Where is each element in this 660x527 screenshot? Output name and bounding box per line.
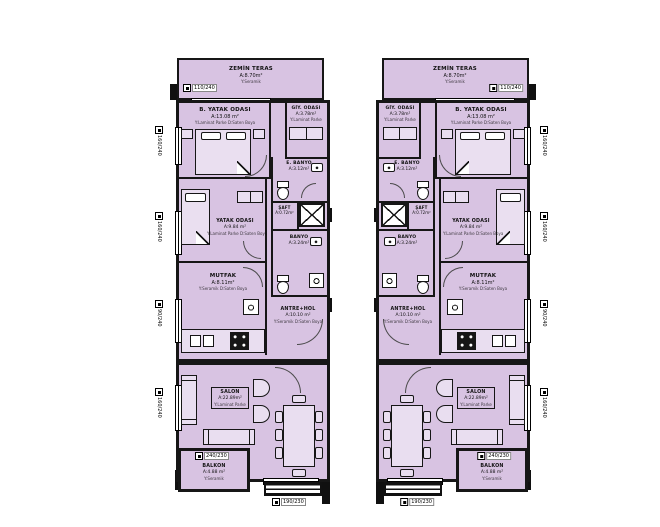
wall: [379, 295, 435, 297]
dimension-tag-icon: [477, 452, 485, 460]
dresser-icon: [443, 191, 469, 203]
sink-basin-icon: [203, 335, 214, 347]
apartment-unit-right: 110/240 ZEMİN TERAS A:8.70m² Y:Seramik: [376, 58, 530, 504]
door-arc-icon: [443, 267, 463, 287]
apartment-unit-left: 110/240 ZEMİN TERAS A:8.70m² Y:Seramik: [176, 58, 330, 504]
dimension-tag-icon: [272, 498, 280, 506]
pillow-icon: [185, 193, 206, 202]
dimension-text: 110/240: [498, 84, 523, 92]
entry-steps-icon: [384, 482, 442, 496]
room-terrace: 110/240 ZEMİN TERAS A:8.70m² Y:Seramik: [382, 58, 529, 100]
nightstand-icon: [253, 129, 265, 139]
dimension-tag-icon: [155, 300, 163, 308]
salon-label: SALON A:22.89m² Y:Laminat Parke: [457, 387, 495, 409]
door-arc-icon: [301, 183, 316, 198]
toilet-icon: [418, 181, 430, 198]
shaft-label: ŞAFT A:0.72m²: [271, 205, 298, 215]
dimension-text: 190/230: [281, 498, 306, 506]
armchair-icon: [253, 405, 270, 423]
bed-icon: [496, 189, 525, 245]
chair-icon: [275, 429, 283, 441]
chair-icon: [423, 429, 431, 441]
chair-icon: [275, 411, 283, 423]
armchair-icon: [436, 379, 453, 397]
dimension-text: 160/240: [541, 135, 547, 156]
kitchen-counter-icon: [181, 329, 265, 353]
balcony-label: BALKON A:4.88 m² Y:Seramik: [184, 464, 244, 481]
chair-icon: [383, 411, 391, 423]
dimension-tag: 160/240: [155, 388, 163, 418]
dimension-tag-icon: [540, 300, 548, 308]
floor-plan-canvas: 110/240 ZEMİN TERAS A:8.70m² Y:Seramik: [0, 0, 660, 527]
nightstand-icon: [513, 129, 525, 139]
dressing-room-label: GİY. ODASI A:3.78m² Y:Laminat Parke: [286, 106, 326, 122]
sofa-icon: [509, 375, 525, 425]
dimension-tag: 160/240: [540, 126, 548, 156]
dimension-tag: 240/230: [477, 452, 511, 460]
window-icon: [524, 385, 531, 431]
dimension-tag: 90/240: [155, 300, 163, 327]
wall: [179, 261, 267, 263]
dimension-text: 110/240: [192, 84, 217, 92]
unit-body: B. YATAK ODASI A:13.08 m² Y:Laminat Park…: [176, 100, 330, 362]
door-arc-icon: [243, 241, 261, 259]
pillow-icon: [485, 132, 505, 140]
chair-icon: [315, 429, 323, 441]
wall: [179, 177, 271, 179]
sofa-icon: [451, 429, 503, 445]
dimension-text: 90/240: [541, 309, 547, 327]
armchair-icon: [436, 405, 453, 423]
chair-icon: [275, 447, 283, 459]
dimension-tag: 190/230: [400, 498, 434, 506]
wall: [271, 295, 327, 297]
dimension-tag-icon: [155, 388, 163, 396]
stove-icon: [230, 332, 249, 350]
toilet-icon: [418, 275, 430, 292]
sink-basin-icon: [492, 335, 503, 347]
wall-pier: [170, 84, 177, 100]
wall-pier: [376, 482, 384, 504]
wall: [285, 157, 327, 159]
chair-icon: [315, 411, 323, 423]
shaft-label: ŞAFT A:0.72m²: [408, 205, 435, 215]
wall-pier: [322, 482, 330, 504]
dimension-text: 160/240: [541, 397, 547, 418]
wall: [265, 179, 267, 263]
wall: [433, 157, 435, 297]
dimension-tag: 240/230: [195, 452, 229, 460]
dimension-tag: 110/240: [489, 84, 523, 92]
shaft-x-icon: [381, 203, 407, 227]
unit-body: B. YATAK ODASI A:13.08 m² Y:Laminat Park…: [376, 100, 530, 362]
master-bedroom-label: B. YATAK ODASI A:13.08 m² Y:Laminat Park…: [185, 107, 265, 125]
sink-basin-icon: [190, 335, 201, 347]
dimension-tag-icon: [183, 84, 191, 92]
door-arc-icon: [275, 367, 301, 393]
door-arc-icon: [243, 267, 263, 287]
oven-icon: [447, 299, 463, 315]
dressing-room-label: GİY. ODASI A:3.78m² Y:Laminat Parke: [380, 106, 420, 122]
entry-steps-icon: [264, 482, 322, 496]
washing-machine-icon: [309, 273, 324, 288]
wall: [265, 263, 267, 355]
sofa-icon: [203, 429, 255, 445]
window-icon: [524, 299, 531, 343]
chair-icon: [423, 411, 431, 423]
dimension-text: 240/230: [204, 452, 229, 460]
door-arc-icon: [445, 241, 463, 259]
salon-label: SALON A:22.89m² Y:Laminat Parke: [211, 387, 249, 409]
pillow-icon: [226, 132, 246, 140]
oven-icon: [243, 299, 259, 315]
wardrobe-icon: [289, 127, 323, 140]
chair-icon: [383, 447, 391, 459]
wall: [379, 229, 435, 231]
wall: [379, 157, 421, 159]
terrace-label: ZEMİN TERAS A:8.70m² Y:Seramik: [205, 66, 297, 84]
dimension-text: 240/230: [486, 452, 511, 460]
dining-table-icon: [391, 405, 423, 467]
sofa-icon: [181, 375, 197, 425]
wall: [439, 179, 441, 263]
wall: [271, 229, 327, 231]
bed-icon: [195, 129, 251, 175]
wardrobe-icon: [383, 127, 417, 140]
dimension-text: 160/240: [541, 221, 547, 242]
kitchen-counter-icon: [441, 329, 525, 353]
window-icon: [524, 211, 531, 255]
balcony-label: BALKON A:4.88 m² Y:Seramik: [462, 464, 522, 481]
dimension-tag: 160/240: [155, 212, 163, 242]
terrace-label: ZEMİN TERAS A:8.70m² Y:Seramik: [409, 66, 501, 84]
master-bedroom-label: B. YATAK ODASI A:13.08 m² Y:Laminat Park…: [441, 107, 521, 125]
dimension-text: 190/230: [409, 498, 434, 506]
dimension-tag: 90/240: [540, 300, 548, 327]
chair-icon: [383, 429, 391, 441]
dimension-text: 160/240: [156, 397, 162, 418]
sink-basin-icon: [505, 335, 516, 347]
chair-icon: [400, 395, 414, 403]
dimension-tag: 110/240: [183, 84, 217, 92]
door-arc-icon: [405, 367, 431, 393]
dimension-tag-icon: [489, 84, 497, 92]
pillow-icon: [460, 132, 480, 140]
entry-door-arc-icon: [297, 319, 323, 345]
bed-icon: [181, 189, 210, 245]
chair-icon: [400, 469, 414, 477]
toilet-icon: [276, 181, 288, 198]
dresser-icon: [237, 191, 263, 203]
dining-table-icon: [283, 405, 315, 467]
room-balcony: 240/230 BALKON A:4.88 m² Y:Seramik: [178, 448, 250, 492]
window-icon: [524, 127, 531, 165]
sink-icon: [310, 237, 322, 246]
dimension-tag-icon: [540, 212, 548, 220]
bedroom-label: YATAK ODASI A:9.84 m² Y:Laminat Parke D:…: [443, 219, 499, 236]
washing-machine-icon: [382, 273, 397, 288]
dimension-tag-icon: [540, 126, 548, 134]
shaft-x-icon: [299, 203, 325, 227]
dimension-tag-icon: [400, 498, 408, 506]
pillow-icon: [201, 132, 221, 140]
dimension-tag: 160/240: [540, 212, 548, 242]
wall: [435, 103, 437, 179]
armchair-icon: [253, 379, 270, 397]
bed-icon: [455, 129, 511, 175]
door-arc-icon: [439, 155, 461, 177]
dimension-tag: 160/240: [155, 126, 163, 156]
room-terrace: 110/240 ZEMİN TERAS A:8.70m² Y:Seramik: [177, 58, 324, 100]
room-balcony: 240/230 BALKON A:4.88 m² Y:Seramik: [456, 448, 528, 492]
sink-icon: [384, 237, 396, 246]
pillow-icon: [500, 193, 521, 202]
dimension-text: 160/240: [156, 135, 162, 156]
chair-icon: [292, 469, 306, 477]
wall-pier: [529, 84, 536, 100]
dimension-tag-icon: [540, 388, 548, 396]
wall: [271, 157, 273, 297]
entry-door-arc-icon: [383, 319, 409, 345]
toilet-icon: [276, 275, 288, 292]
dimension-text: 90/240: [156, 309, 162, 327]
stove-icon: [457, 332, 476, 350]
chair-icon: [423, 447, 431, 459]
door-arc-icon: [245, 155, 267, 177]
dimension-tag-icon: [195, 452, 203, 460]
bedroom-label: YATAK ODASI A:9.84 m² Y:Laminat Parke D:…: [207, 219, 263, 236]
dimension-tag: 160/240: [540, 388, 548, 418]
chair-icon: [315, 447, 323, 459]
dimension-text: 160/240: [156, 221, 162, 242]
dimension-tag-icon: [155, 212, 163, 220]
wall: [435, 177, 527, 179]
dimension-tag: 190/230: [272, 498, 306, 506]
sink-icon: [383, 163, 395, 172]
nightstand-icon: [181, 129, 193, 139]
sink-icon: [311, 163, 323, 172]
chair-icon: [292, 395, 306, 403]
wall: [439, 261, 527, 263]
dimension-tag-icon: [155, 126, 163, 134]
door-arc-icon: [390, 183, 405, 198]
nightstand-icon: [441, 129, 453, 139]
